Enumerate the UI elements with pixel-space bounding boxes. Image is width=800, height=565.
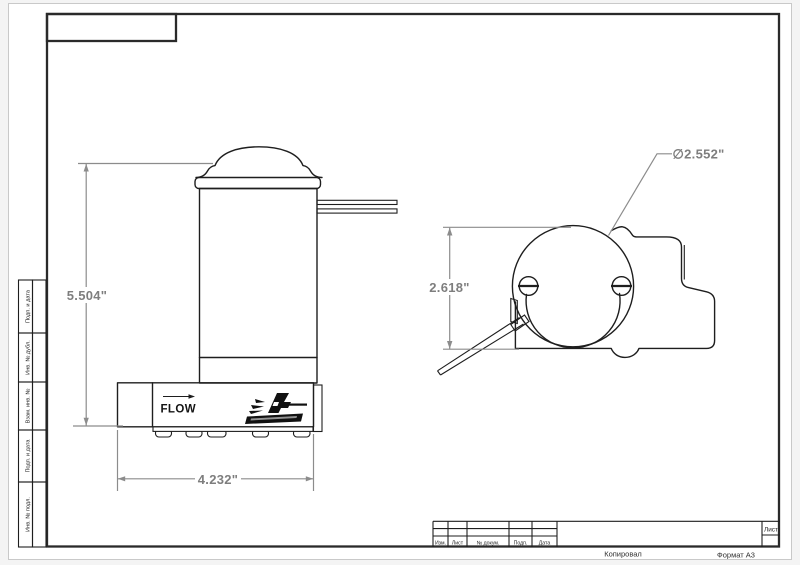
title-col-list: Лист	[452, 540, 464, 546]
dim-side-width-value: 4.232"	[198, 472, 239, 487]
title-col-izm: Изм.	[435, 540, 446, 546]
flow-label: FLOW	[161, 404, 196, 416]
title-col-data: Дата	[539, 540, 551, 546]
dim-top-height-value: 2.618"	[429, 280, 470, 295]
sidebar-label: Инв. № подл.	[26, 497, 32, 532]
format-note: Формат А3	[717, 551, 755, 560]
title-col-ndokum: № докум.	[477, 540, 500, 546]
dim-top-diameter-value: ∅2.552"	[673, 147, 725, 162]
sidebar-label: Подп. и дата	[26, 439, 32, 473]
sidebar-label: Подп. и дата	[26, 289, 32, 323]
paper	[9, 4, 792, 560]
base-foot-plate	[153, 427, 313, 432]
sidebar-label: Взам. инв. №	[26, 389, 32, 424]
dim-side-height-value: 5.504"	[67, 288, 108, 303]
sidebar-label: Инв. № дубл.	[26, 340, 32, 375]
drawing-sheet-page: Подп. и дата Инв. № дубл. Взам. инв. № П…	[0, 0, 800, 565]
engineering-drawing: Подп. и дата Инв. № дубл. Взам. инв. № П…	[0, 0, 800, 565]
copied-note: Копировал	[604, 550, 642, 559]
title-col-podp: Подп.	[514, 540, 528, 546]
sheet-cell-label: Лист	[764, 527, 778, 534]
